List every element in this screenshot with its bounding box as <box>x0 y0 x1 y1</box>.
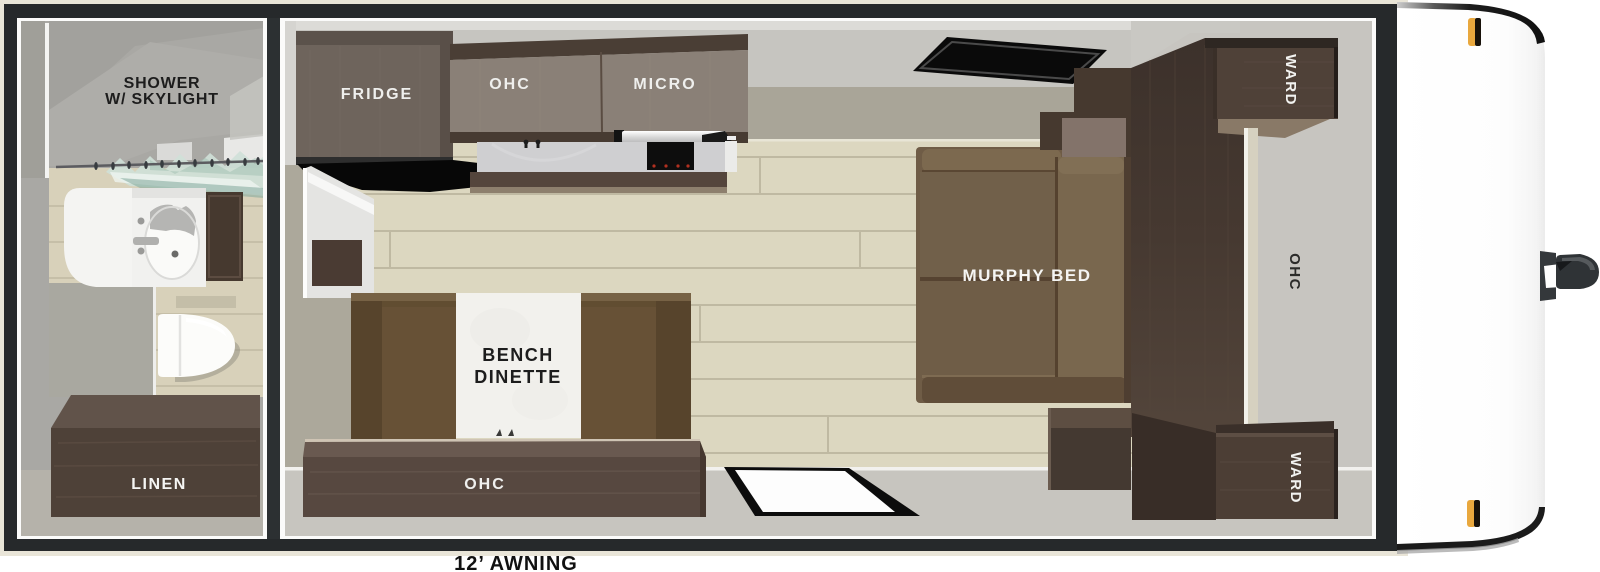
svg-text:12’ AWNING: 12’ AWNING <box>454 553 578 572</box>
svg-text:MICRO: MICRO <box>633 76 696 93</box>
svg-text:MURPHY BED: MURPHY BED <box>963 266 1092 285</box>
svg-text:OHC: OHC <box>1286 253 1303 291</box>
svg-text:OHC: OHC <box>464 476 506 493</box>
svg-text:DINETTE: DINETTE <box>474 367 562 387</box>
svg-text:W/ SKYLIGHT: W/ SKYLIGHT <box>105 91 219 108</box>
svg-text:LINEN: LINEN <box>131 476 187 493</box>
svg-text:SHOWER: SHOWER <box>124 75 201 92</box>
svg-text:BENCH: BENCH <box>482 345 554 365</box>
svg-text:WARD: WARD <box>1282 54 1299 106</box>
svg-text:OHC: OHC <box>489 76 531 93</box>
svg-text:FRIDGE: FRIDGE <box>341 86 413 103</box>
svg-text:WARD: WARD <box>1287 452 1304 504</box>
